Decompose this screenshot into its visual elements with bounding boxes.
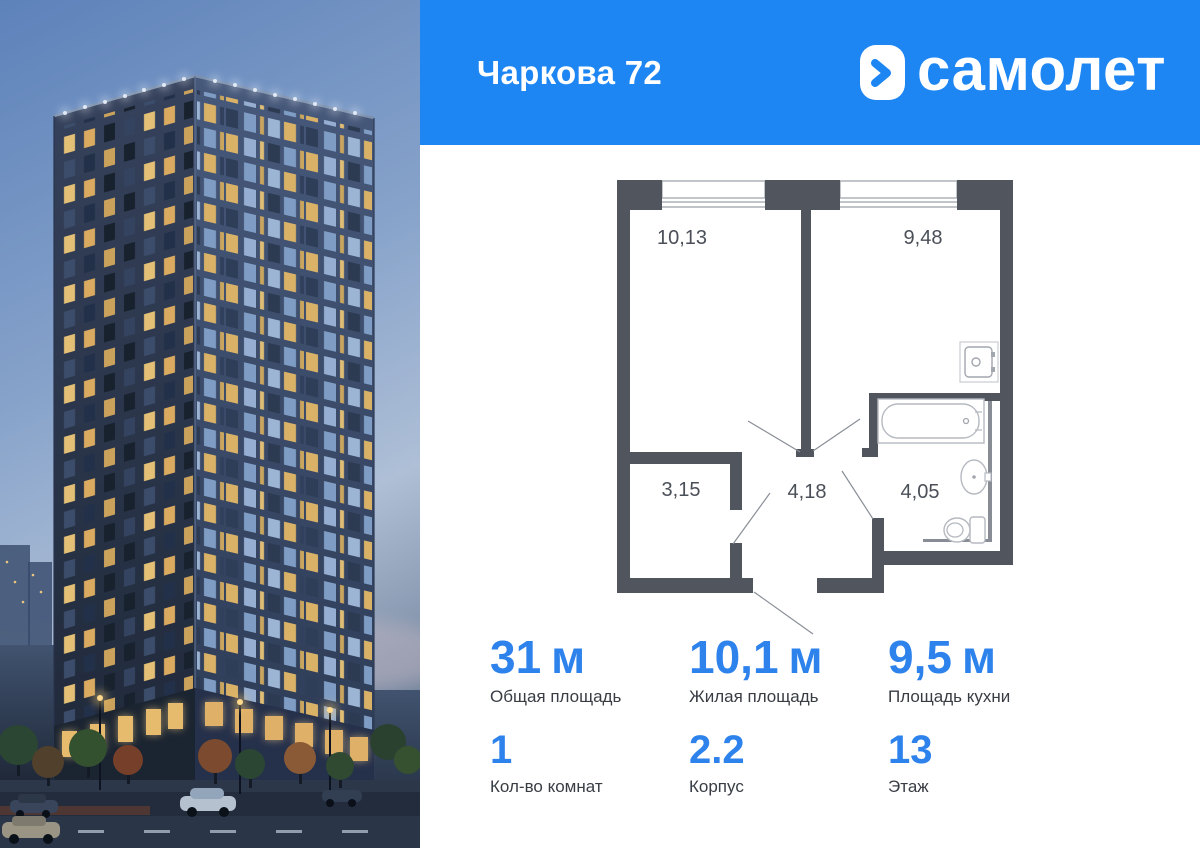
stat-rooms-count-label: Кол-во комнат [490,777,689,797]
stat-number: 31 [490,631,541,683]
stat-floor-label: Этаж [888,777,1087,797]
brand-logo: самолет [860,43,1166,103]
floor-plan-drawing: 10,13 9,48 3,15 4,18 4,05 [617,180,1013,645]
stat-floor-value: 13 [888,730,1087,770]
floor-plan: 10,13 9,48 3,15 4,18 4,05 [617,180,1013,645]
stat-kitchen-area-value: 9,5м [888,634,1087,680]
stat-kitchen-area-label: Площадь кухни [888,687,1087,707]
stat-unit: м [551,631,585,683]
stat-total-area-label: Общая площадь [490,687,689,707]
stat-rooms-count: 1 Кол-во комнат [490,730,689,797]
hallway-area: 4,18 [788,481,827,503]
chevron-right-icon [870,59,894,87]
room-left-area: 10,13 [657,227,707,249]
stat-building: 2.2 Корпус [689,730,888,797]
stat-building-label: Корпус [689,777,888,797]
stat-living-area-value: 10,1м [689,634,888,680]
room-right-area: 9,48 [904,227,943,249]
stat-floor: 13 Этаж [888,730,1087,797]
building-photo [0,0,420,848]
closet-area: 3,15 [662,479,701,501]
bathroom-area: 4,05 [901,481,940,503]
stat-rooms-count-value: 1 [490,730,689,770]
header-banner: Чаркова 72 самолет [420,0,1200,145]
stat-kitchen-area: 9,5м Площадь кухни [888,634,1087,707]
stat-number: 10,1 [689,631,779,683]
stat-unit: м [962,631,996,683]
bathtub-icon [878,399,984,443]
listing-card: Чаркова 72 самолет [0,0,1200,848]
stat-number: 9,5 [888,631,952,683]
stat-unit: м [789,631,823,683]
project-title: Чаркова 72 [477,54,662,92]
stat-total-area-value: 31м [490,634,689,680]
stat-living-area-label: Жилая площадь [689,687,888,707]
stat-living-area: 10,1м Жилая площадь [689,634,888,707]
stats-row-areas: 31м Общая площадь 10,1м Жилая площадь 9,… [490,634,1087,707]
kitchen-sink-icon [960,342,998,382]
building-photo-art [0,0,420,848]
sink-icon [961,460,991,494]
stat-total-area: 31м Общая площадь [490,634,689,707]
stats-row-details: 1 Кол-во комнат 2.2 Корпус 13 Этаж [490,730,1087,797]
brand-name: самолет [917,40,1166,100]
stat-building-value: 2.2 [689,730,888,770]
samolet-logo-icon [860,45,905,100]
toilet-icon [944,517,985,543]
content-panel: Чаркова 72 самолет [420,0,1200,848]
